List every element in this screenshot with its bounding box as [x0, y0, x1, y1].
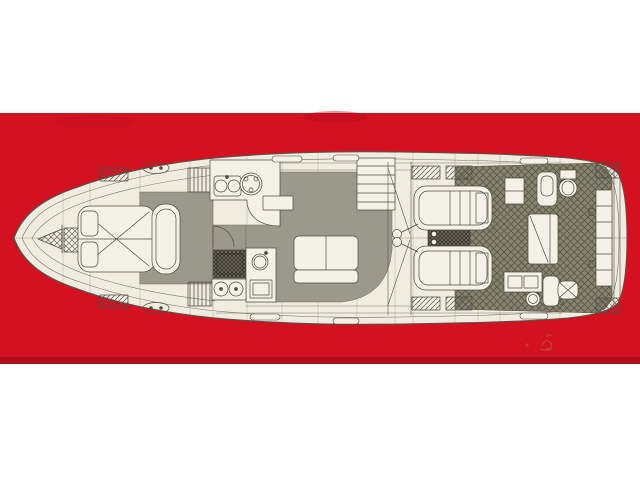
- red-panel-bottom-shade: [0, 357, 640, 364]
- stern-corner-locker-bottom: [596, 298, 620, 313]
- shaft-coupling-starboard: [432, 240, 437, 245]
- basin-faucet: [265, 252, 268, 255]
- passage-floor: [213, 225, 246, 250]
- engine-vent-bottom-1: [412, 297, 440, 310]
- stern-corner-locker-top: [596, 163, 620, 178]
- print-smudge: [303, 111, 367, 123]
- hatch-dog-2: [160, 167, 163, 170]
- stool: [526, 292, 540, 306]
- deck-rail-bottom-3: [520, 313, 548, 319]
- faucet-dot: [226, 176, 229, 179]
- salon-cabinet: [263, 196, 293, 210]
- deck-rail-top-2: [333, 155, 359, 161]
- burner-1-dot: [220, 288, 223, 291]
- wardrobe-bottom: [188, 282, 212, 306]
- foredeck-box-top: [100, 168, 128, 181]
- yacht-plan-figure: [0, 0, 640, 480]
- galley-sink-unit: [214, 176, 241, 196]
- hatch-dog-3: [150, 307, 153, 310]
- shaft-coupling-port: [432, 232, 437, 237]
- foredeck-box-bottom: [100, 295, 128, 308]
- engine-port-flange: [393, 230, 402, 239]
- deck-rail-bottom-1: [250, 314, 280, 320]
- engine-starboard: [414, 246, 492, 290]
- aft-dresser: [504, 272, 542, 292]
- bed-head-locker: [64, 228, 80, 252]
- head-starboard-counter: [543, 276, 559, 306]
- engine-port: [414, 186, 492, 230]
- deck-rail-top-1: [272, 156, 302, 162]
- head-port-counter: [537, 172, 557, 206]
- engine-starboard-flange: [393, 238, 402, 247]
- print-smudge-2: [55, 115, 135, 129]
- pillow-top: [81, 211, 98, 236]
- hatch-dog-4: [160, 307, 163, 310]
- pillow-bottom: [81, 242, 98, 267]
- engine-vent-top-1: [412, 166, 440, 179]
- yacht-plan: [14, 150, 627, 326]
- engine-vent-bottom-2: [446, 297, 472, 310]
- settee-backrest: [294, 270, 358, 283]
- deck-rail-top-3: [520, 158, 548, 164]
- wardrobe-top: [188, 168, 212, 192]
- hatch-dog-1: [150, 167, 153, 170]
- toilet-port-tank: [560, 170, 576, 179]
- engine-vent-top-2: [446, 166, 472, 179]
- burner-2-dot: [235, 288, 238, 291]
- scanned-brochure-page: [0, 0, 640, 480]
- deck-rail-bottom-2: [333, 318, 359, 324]
